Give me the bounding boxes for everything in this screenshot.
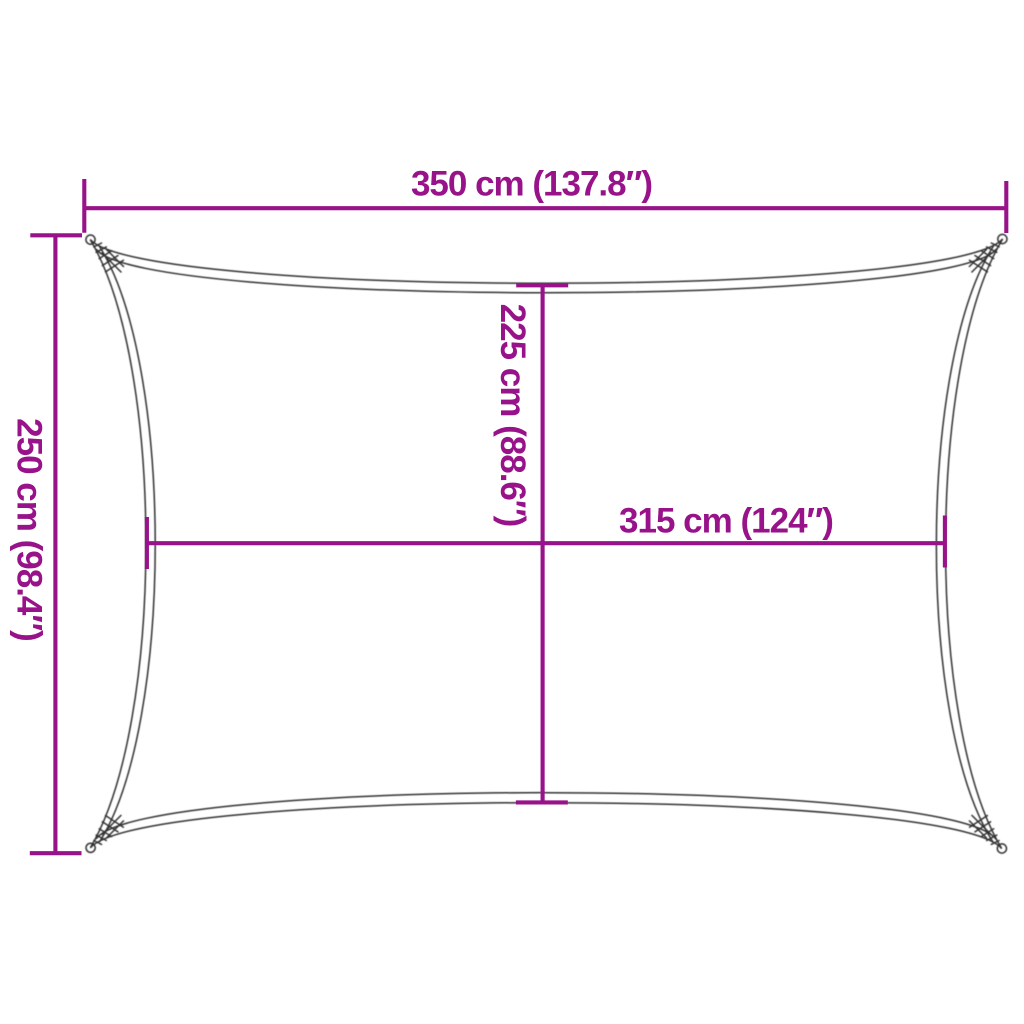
svg-text:250 cm (98.4″): 250 cm (98.4″) [9, 418, 48, 641]
svg-text:315 cm (124″): 315 cm (124″) [619, 502, 833, 541]
svg-text:350 cm (137.8″): 350 cm (137.8″) [411, 165, 652, 204]
svg-text:225 cm (88.6″): 225 cm (88.6″) [493, 304, 532, 527]
